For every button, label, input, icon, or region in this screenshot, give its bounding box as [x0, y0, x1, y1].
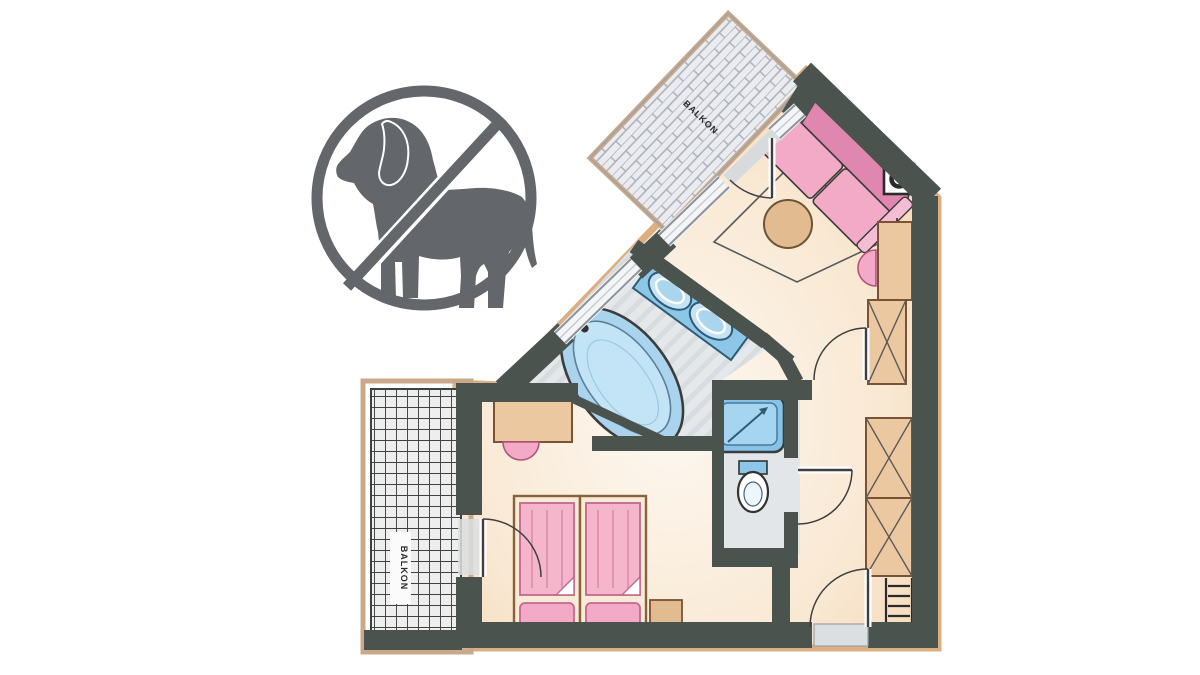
- desk: [494, 396, 572, 442]
- wardrobe-upper: [868, 300, 906, 384]
- shower: [714, 396, 784, 452]
- screenshot-root: BALKON BALKON: [0, 0, 1200, 675]
- toilet: [738, 461, 768, 512]
- no-dogs-sign: [317, 91, 537, 308]
- dresser: [878, 222, 912, 300]
- left-balcony: BALKON: [363, 381, 471, 652]
- floor-plan-scene: BALKON BALKON: [0, 0, 1200, 675]
- bedroom-door-sill: [458, 519, 480, 575]
- wardrobe-lower: [866, 418, 912, 576]
- bed-right: [580, 496, 646, 644]
- coffee-table: [764, 200, 812, 248]
- balcony-end-wall: [364, 630, 462, 650]
- balcony-left-label: BALKON: [399, 546, 409, 591]
- bed-left: [514, 496, 580, 644]
- entry-threshold: [814, 624, 868, 646]
- floor-plan: BALKON BALKON: [363, 13, 938, 652]
